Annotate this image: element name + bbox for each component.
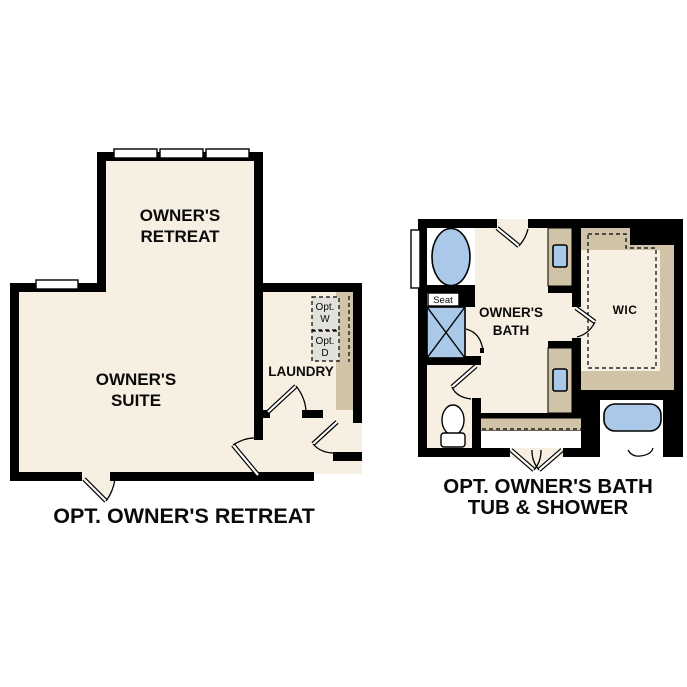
laundry-label: LAUNDRY [268,364,334,379]
washer-label-line2: W [320,314,330,325]
owners-suite-label-line1: OWNER'S [96,370,177,389]
retreat-plan-caption: OPT. OWNER'S RETREAT [53,504,315,528]
soaking-tub-icon [604,404,661,431]
upper-sink-icon [553,245,567,267]
owners-bath-label-line1: OWNER'S [479,305,543,320]
window-icon [160,149,203,158]
garden-tub-icon [432,229,470,286]
floorplan-svg: Opt. W Opt. D [0,0,687,687]
seat-label: Seat [433,295,453,306]
owners-suite-label-line2: SUITE [111,391,161,410]
floorplan-canvas: Opt. W Opt. D [0,0,687,687]
owners-retreat-plan: Opt. W Opt. D [10,149,362,528]
bath-plan-caption-line1: OPT. OWNER'S BATH [443,475,653,498]
bath-plan-caption-line2: TUB & SHOWER [468,496,629,519]
window-icon [411,230,420,288]
owners-retreat-label-line1: OWNER'S [140,206,221,225]
toilet-icon [441,405,465,447]
wic-label: WIC [613,303,638,317]
window-icon [36,280,78,289]
bottom-counter-ledge [480,431,590,448]
window-icon [114,149,157,158]
dryer-label-line1: Opt. [316,336,335,347]
window-icon [206,149,249,158]
lower-sink-icon [553,369,567,391]
owners-retreat-label-line2: RETREAT [140,227,220,246]
soaking-tub-area [600,400,663,456]
owners-bath-plan: OWNER'S BATH WIC Seat OPT. OWNER'S BATH … [411,219,683,519]
dryer-label-line2: D [321,348,328,359]
owners-bath-label-line2: BATH [493,323,530,338]
washer-label-line1: Opt. [316,302,335,313]
shower-icon [427,307,465,358]
